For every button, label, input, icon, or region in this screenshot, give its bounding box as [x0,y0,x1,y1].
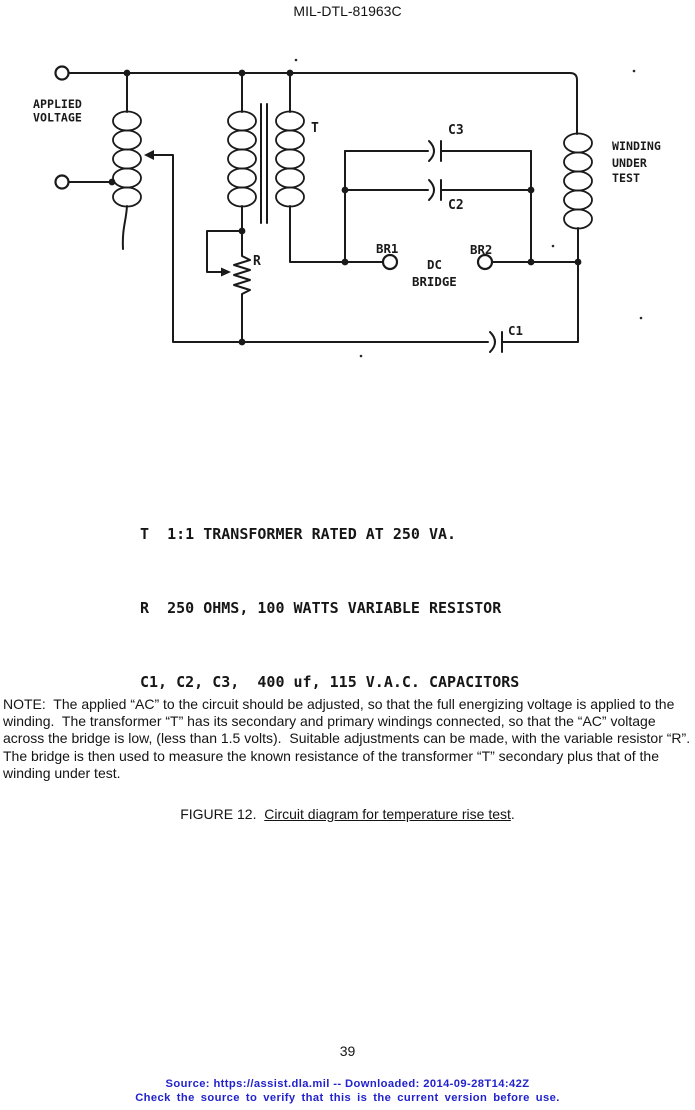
tap-return-wire [152,155,488,342]
c2-label: C2 [448,198,464,213]
c2-capacitor-icon [429,180,434,200]
br1-label: BR1 [376,241,398,256]
br2-label: BR2 [470,242,492,257]
c1-label: C1 [508,323,523,338]
legend-line-resistor: R 250 OHMS, 100 WATTS VARIABLE RESISTOR [140,596,519,621]
c3-label: C3 [448,123,464,138]
coils [113,112,592,229]
figure-caption-suffix: . [511,806,515,822]
circuit-wires [69,73,579,342]
scan-specks [295,59,643,358]
footer-warning-line: Check the source to verify that this is … [0,1092,695,1106]
br2-terminal [478,255,492,269]
figure-caption-title: Circuit diagram for temperature rise tes… [264,806,511,822]
dc-bridge-label: BRIDGE [412,274,457,289]
document-header-title: MIL-DTL-81963C [0,3,695,19]
c1-capacitor-icon [490,332,495,352]
legend-line-transformer: T 1:1 TRANSFORMER RATED AT 250 VA. [140,522,519,547]
dc-bridge-label: DC [427,257,442,272]
page-number: 39 [0,1043,695,1059]
winding-under-test-coil-icon [564,134,592,229]
variac-coil-icon [113,112,141,207]
resistor-r [234,231,250,342]
winding-under-test-label: TEST [612,171,640,185]
circuit-diagram: APPLIED VOLTAGE T C3 C2 BR1 BR2 DC BRIDG… [0,50,695,370]
applied-voltage-label: VOLTAGE [33,111,82,125]
top-rail-wire [69,73,578,134]
arrows [144,150,231,277]
transformer-primary-coil-icon [228,112,256,207]
resistor-r-label: R [253,254,261,269]
diagram-labels: APPLIED VOLTAGE T C3 C2 BR1 BR2 DC BRIDG… [33,97,661,338]
figure-caption-prefix: FIGURE 12. [180,806,264,822]
applied-voltage-terminal-top [56,67,69,80]
legend-line-capacitors: C1, C2, C3, 400 uf, 115 V.A.C. CAPACITOR… [140,670,519,695]
winding-under-test-label: WINDING [612,139,661,153]
variac-tail [123,206,127,249]
page-footer: Source: https://assist.dla.mil -- Downlo… [0,1078,695,1105]
figure-caption: FIGURE 12. Circuit diagram for temperatu… [0,806,695,822]
applied-voltage-label: APPLIED [33,97,82,111]
transformer-t-label: T [311,121,319,136]
applied-voltage-terminal-bottom [56,176,69,189]
resistor-wiper-arrow-icon [221,268,231,277]
secondary-bottom-wire [290,206,383,262]
winding-under-test-label: UNDER [612,156,647,170]
note-paragraph: NOTE: The applied “AC” to the circuit sh… [3,696,693,782]
document-page: MIL-DTL-81963C [0,0,695,1110]
br1-terminal [383,255,397,269]
variac-tap-arrow-icon [144,150,154,160]
footer-source-line: Source: https://assist.dla.mil -- Downlo… [0,1078,695,1092]
c3-capacitor-icon [429,141,434,161]
transformer-secondary-coil-icon [276,112,304,207]
